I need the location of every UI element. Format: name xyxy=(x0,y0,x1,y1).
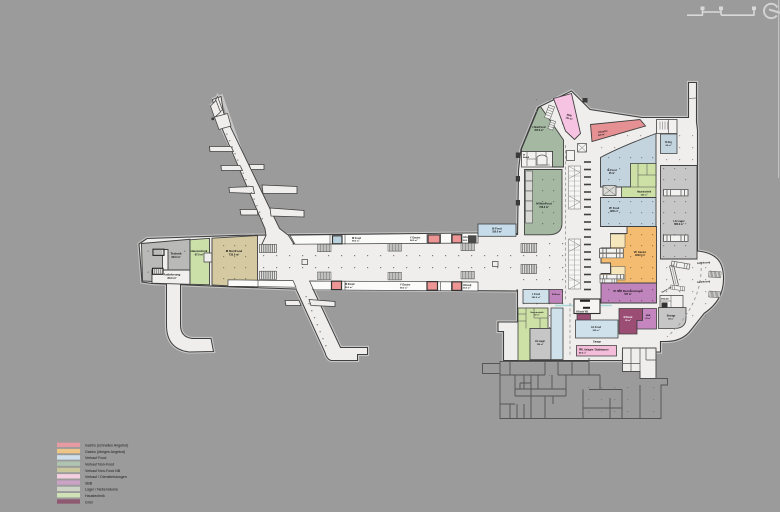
svg-text:36.0 m²: 36.0 m² xyxy=(463,287,471,290)
svg-text:I-Kiosk VB: I-Kiosk VB xyxy=(576,310,588,313)
svg-text:98.0 m²: 98.0 m² xyxy=(352,240,360,243)
svg-text:733.0 m²: 733.0 m² xyxy=(229,253,240,257)
svg-text:VF SBB Dienstleistungen: VF SBB Dienstleistungen xyxy=(613,290,643,293)
svg-text:150 m²: 150 m² xyxy=(537,343,544,346)
svg-text:97.0 m²: 97.0 m² xyxy=(195,253,204,257)
svg-text:162 m²: 162 m² xyxy=(641,193,648,196)
svg-text:Haustechnik: Haustechnik xyxy=(530,311,544,314)
svg-text:Gastro (übriges Angebot): Gastro (übriges Angebot) xyxy=(85,450,125,454)
svg-text:64 m²: 64 m² xyxy=(668,317,674,320)
svg-text:M Kiosk: M Kiosk xyxy=(624,317,634,319)
svg-text:60 m²: 60 m² xyxy=(666,144,672,147)
svg-text:733.0 m²: 733.0 m² xyxy=(539,205,549,209)
svg-text:M Abfall: M Abfall xyxy=(661,298,669,301)
svg-text:Verkauf Food: Verkauf Food xyxy=(85,456,106,460)
svg-text:392 m²: 392 m² xyxy=(593,329,600,332)
svg-text:80 m²: 80 m² xyxy=(625,319,631,322)
svg-text:VF Food: VF Food xyxy=(609,206,620,210)
svg-text:36.0 m²: 36.0 m² xyxy=(345,286,353,289)
svg-text:Gastro (schnelles Angebot): Gastro (schnelles Angebot) xyxy=(85,444,128,448)
svg-text:Haustechnik: Haustechnik xyxy=(191,249,208,253)
svg-text:68.0 m²: 68.0 m² xyxy=(172,255,181,259)
svg-text:300.0 m²: 300.0 m² xyxy=(532,296,541,299)
svg-text:Lager / Nebenräume: Lager / Nebenräume xyxy=(85,488,118,492)
svg-text:M Kiosk: M Kiosk xyxy=(345,283,355,286)
svg-text:98.0 m²: 98.0 m² xyxy=(410,239,418,242)
svg-text:Anlieferung: Anlieferung xyxy=(164,273,181,277)
svg-text:LG Lager: LG Lager xyxy=(673,219,684,223)
svg-text:Storage: Storage xyxy=(667,315,676,318)
svg-text:Technik: Technik xyxy=(170,252,181,256)
svg-text:Verkauf Non-Food NB: Verkauf Non-Food NB xyxy=(85,469,121,473)
svg-text:I² Gastro: I² Gastro xyxy=(410,235,421,239)
svg-text:VF Gastro: VF Gastro xyxy=(634,250,647,254)
svg-text:Abfall: Abfall xyxy=(523,156,529,159)
svg-text:LG Lager: LG Lager xyxy=(535,341,545,343)
svg-text:Verkauf Non-Food: Verkauf Non-Food xyxy=(85,463,114,467)
svg-text:Verkauf / Dienstleistungen: Verkauf / Dienstleistungen xyxy=(85,475,127,479)
svg-text:80.0 m²: 80.0 m² xyxy=(168,276,177,280)
svg-text:I-Kiosk: I-Kiosk xyxy=(463,284,472,287)
svg-text:SBB: SBB xyxy=(85,481,93,485)
svg-text:Haustechnik: Haustechnik xyxy=(637,191,652,194)
svg-text:LG Food: LG Food xyxy=(591,326,601,329)
svg-text:63 m²: 63 m² xyxy=(645,317,651,320)
svg-text:98.0 m²: 98.0 m² xyxy=(400,286,408,289)
svg-text:SBB: SBB xyxy=(646,315,651,317)
svg-text:180.0 m²: 180.0 m² xyxy=(492,230,502,234)
svg-text:I-NonFood: I-NonFood xyxy=(533,125,546,129)
svg-text:Grün: Grün xyxy=(85,500,93,504)
svg-text:PRL Anlagen / Stadtwasser: PRL Anlagen / Stadtwasser xyxy=(579,349,609,352)
svg-text:48.0 m²: 48.0 m² xyxy=(579,352,586,355)
svg-text:B-Food: B-Food xyxy=(607,168,616,172)
svg-text:L Food: L Food xyxy=(532,293,540,296)
svg-text:M Wurst: M Wurst xyxy=(552,293,560,296)
svg-text:Garage: Garage xyxy=(593,342,602,344)
svg-text:Haustechnik: Haustechnik xyxy=(85,494,105,498)
svg-text:M NonFood: M NonFood xyxy=(226,249,243,253)
svg-text:97 m²: 97 m² xyxy=(534,314,540,317)
svg-text:M Food: M Food xyxy=(352,237,361,240)
svg-text:B-Fzg: B-Fzg xyxy=(665,141,672,144)
svg-text:I² Gastro: I² Gastro xyxy=(400,283,411,287)
